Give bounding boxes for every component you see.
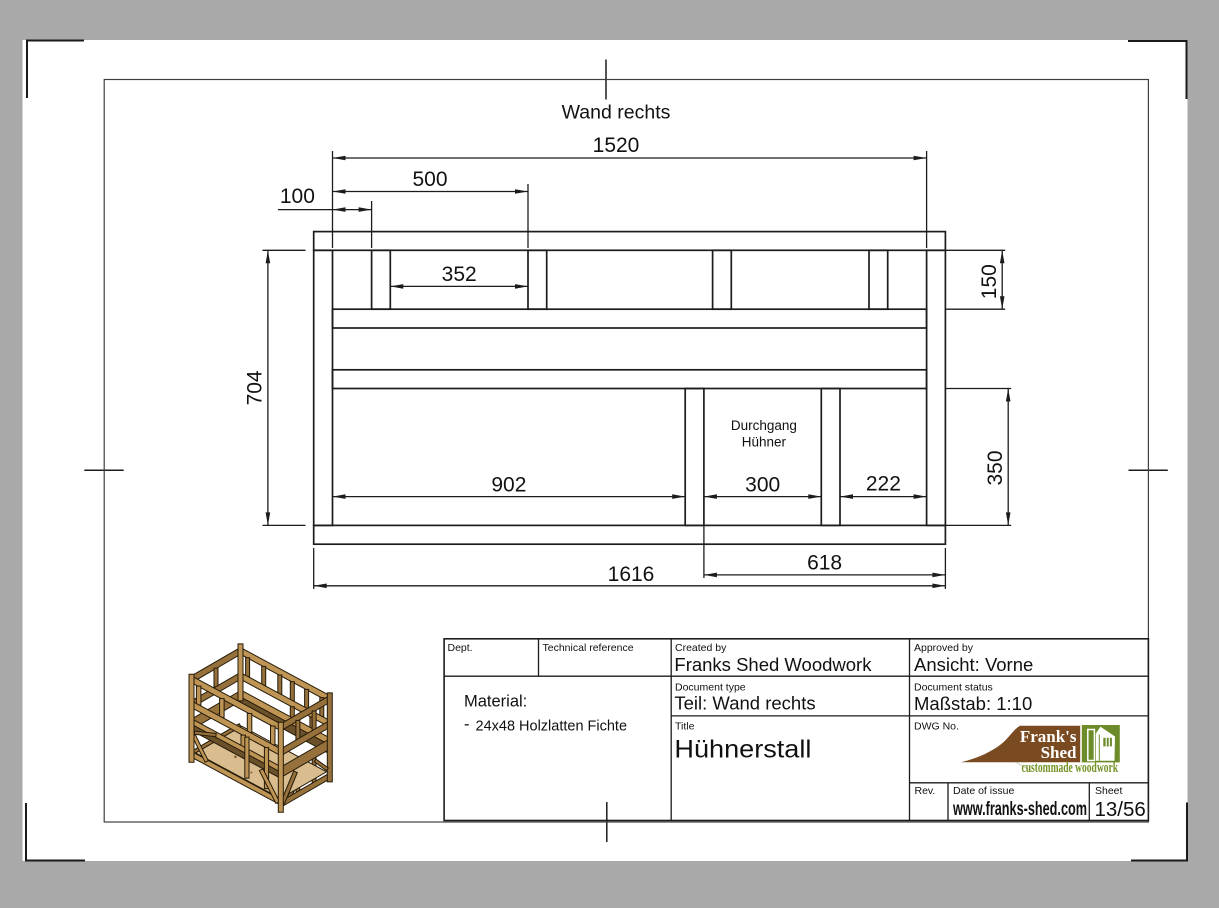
svg-text:-: - bbox=[464, 716, 470, 734]
svg-text:Hühnerstall: Hühnerstall bbox=[674, 736, 811, 764]
svg-text:Maßstab: 1:10: Maßstab: 1:10 bbox=[914, 693, 1032, 714]
svg-text:Franks Shed Woodwork: Franks Shed Woodwork bbox=[674, 654, 872, 675]
svg-text:150: 150 bbox=[978, 264, 1001, 299]
svg-text:1520: 1520 bbox=[593, 134, 640, 157]
svg-text:618: 618 bbox=[807, 551, 842, 574]
svg-text:704: 704 bbox=[244, 370, 267, 405]
svg-text:Wand rechts: Wand rechts bbox=[562, 102, 671, 124]
svg-text:Dept.: Dept. bbox=[448, 642, 473, 654]
svg-text:352: 352 bbox=[442, 263, 477, 286]
svg-text:custommade woodwork: custommade woodwork bbox=[1022, 760, 1119, 776]
svg-text:100: 100 bbox=[280, 185, 315, 208]
svg-text:Document status: Document status bbox=[914, 682, 993, 694]
svg-text:Date of issue: Date of issue bbox=[953, 785, 1014, 797]
svg-text:Material:: Material: bbox=[464, 693, 527, 711]
svg-text:Approved by: Approved by bbox=[914, 642, 974, 654]
svg-text:Created by: Created by bbox=[675, 642, 727, 654]
svg-text:www.franks-shed.com: www.franks-shed.com bbox=[952, 799, 1087, 820]
svg-text:Technical reference: Technical reference bbox=[543, 642, 634, 654]
svg-text:DWG No.: DWG No. bbox=[914, 721, 959, 733]
svg-text:Hühner: Hühner bbox=[742, 434, 787, 449]
svg-text:500: 500 bbox=[412, 168, 447, 191]
svg-text:Sheet: Sheet bbox=[1095, 785, 1123, 797]
svg-text:13/56: 13/56 bbox=[1095, 798, 1146, 821]
svg-text:Title: Title bbox=[675, 721, 695, 733]
svg-text:1616: 1616 bbox=[608, 563, 655, 586]
svg-text:Rev.: Rev. bbox=[915, 785, 936, 797]
svg-text:Durchgang: Durchgang bbox=[731, 418, 797, 433]
svg-text:24x48 Holzlatten Fichte: 24x48 Holzlatten Fichte bbox=[476, 719, 628, 735]
svg-text:222: 222 bbox=[866, 473, 901, 496]
svg-text:902: 902 bbox=[491, 473, 526, 496]
svg-text:Ansicht: Vorne: Ansicht: Vorne bbox=[914, 654, 1033, 675]
svg-text:300: 300 bbox=[745, 473, 780, 496]
svg-text:350: 350 bbox=[984, 450, 1007, 485]
svg-text:Teil: Wand rechts: Teil: Wand rechts bbox=[674, 693, 815, 714]
